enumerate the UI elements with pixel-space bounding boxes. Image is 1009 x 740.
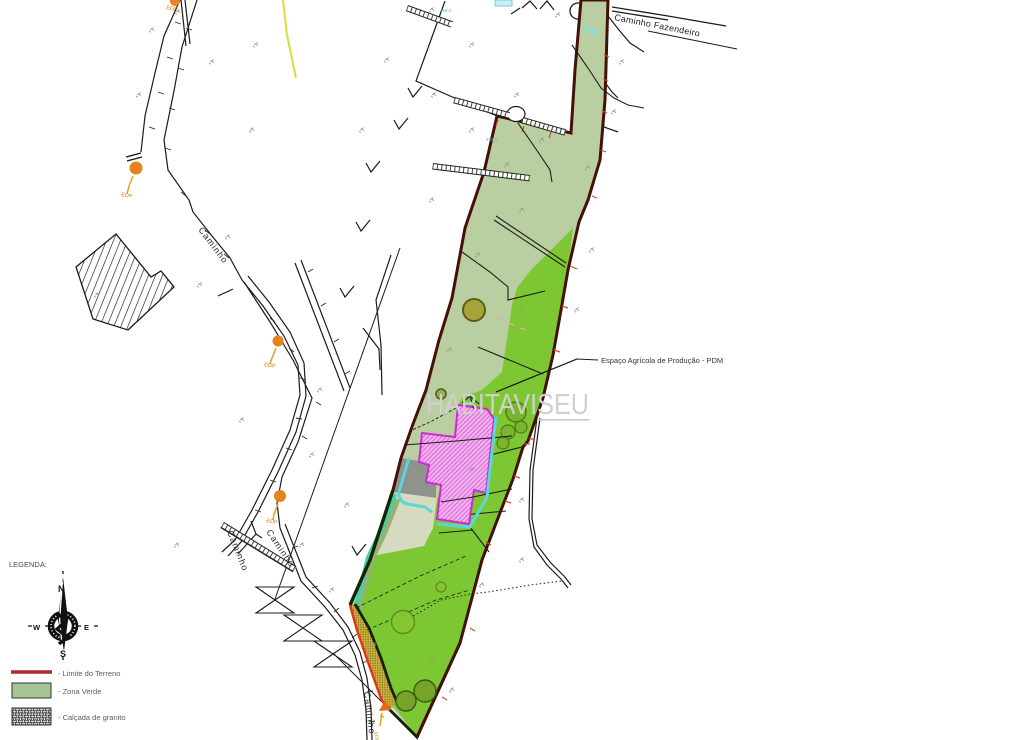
- svg-text:493.1: 493.1: [486, 137, 498, 142]
- svg-text:LEGENDA:: LEGENDA:: [9, 560, 47, 569]
- svg-text:- Calçada de granito: - Calçada de granito: [58, 713, 126, 722]
- svg-text:- Zona Verde: - Zona Verde: [58, 687, 101, 696]
- svg-text:N: N: [58, 584, 65, 594]
- svg-text:W: W: [33, 623, 41, 632]
- svg-text:HABITAVISEU: HABITAVISEU: [426, 389, 589, 421]
- svg-text:498.2: 498.2: [440, 8, 452, 13]
- svg-text:Espaço Agrícola de Produção -: Espaço Agrícola de Produção - PDM: [601, 356, 723, 365]
- svg-text:S: S: [60, 649, 66, 659]
- svg-text:- Limite do Terreno: - Limite do Terreno: [58, 669, 120, 678]
- svg-text:E: E: [84, 623, 89, 632]
